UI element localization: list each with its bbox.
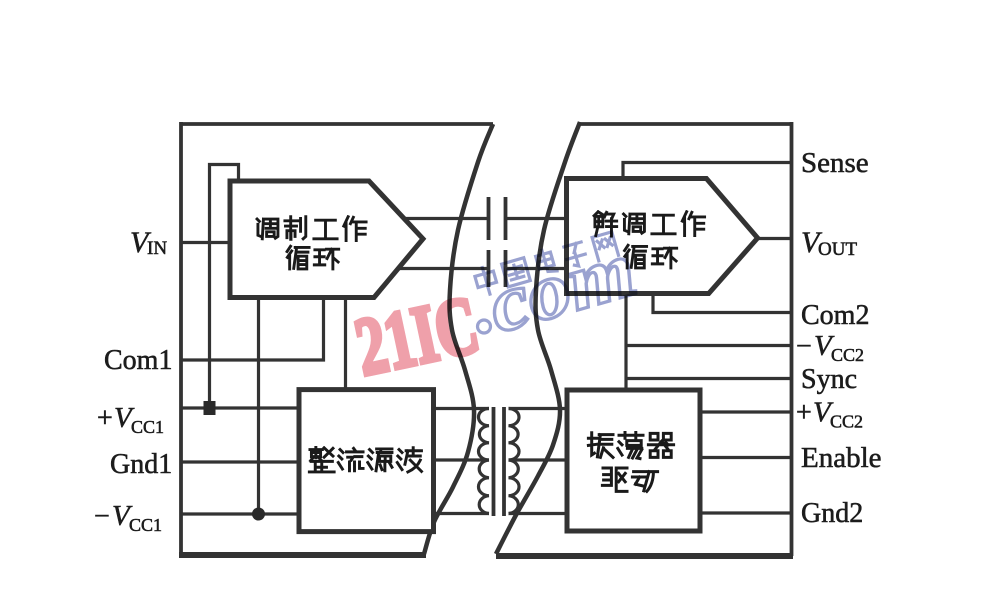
svg-text:CC1: CC1 xyxy=(129,515,162,535)
svg-text:−: − xyxy=(94,501,110,532)
svg-text:−: − xyxy=(796,331,812,362)
svg-text:OUT: OUT xyxy=(818,239,857,260)
svg-text:Com2: Com2 xyxy=(801,300,869,331)
svg-text:+: + xyxy=(97,403,113,434)
svg-text:Com1: Com1 xyxy=(104,345,172,376)
svg-text:IN: IN xyxy=(147,238,167,259)
svg-text:Gnd2: Gnd2 xyxy=(801,498,863,529)
svg-text:CC1: CC1 xyxy=(131,417,164,437)
svg-text:+: + xyxy=(796,398,812,429)
svg-text:CC2: CC2 xyxy=(831,345,864,365)
svg-text:Gnd1: Gnd1 xyxy=(110,449,172,480)
svg-text:Enable: Enable xyxy=(801,442,882,474)
svg-text:Sync: Sync xyxy=(801,364,857,395)
svg-text:Sense: Sense xyxy=(801,147,869,179)
svg-text:CC2: CC2 xyxy=(830,412,863,432)
